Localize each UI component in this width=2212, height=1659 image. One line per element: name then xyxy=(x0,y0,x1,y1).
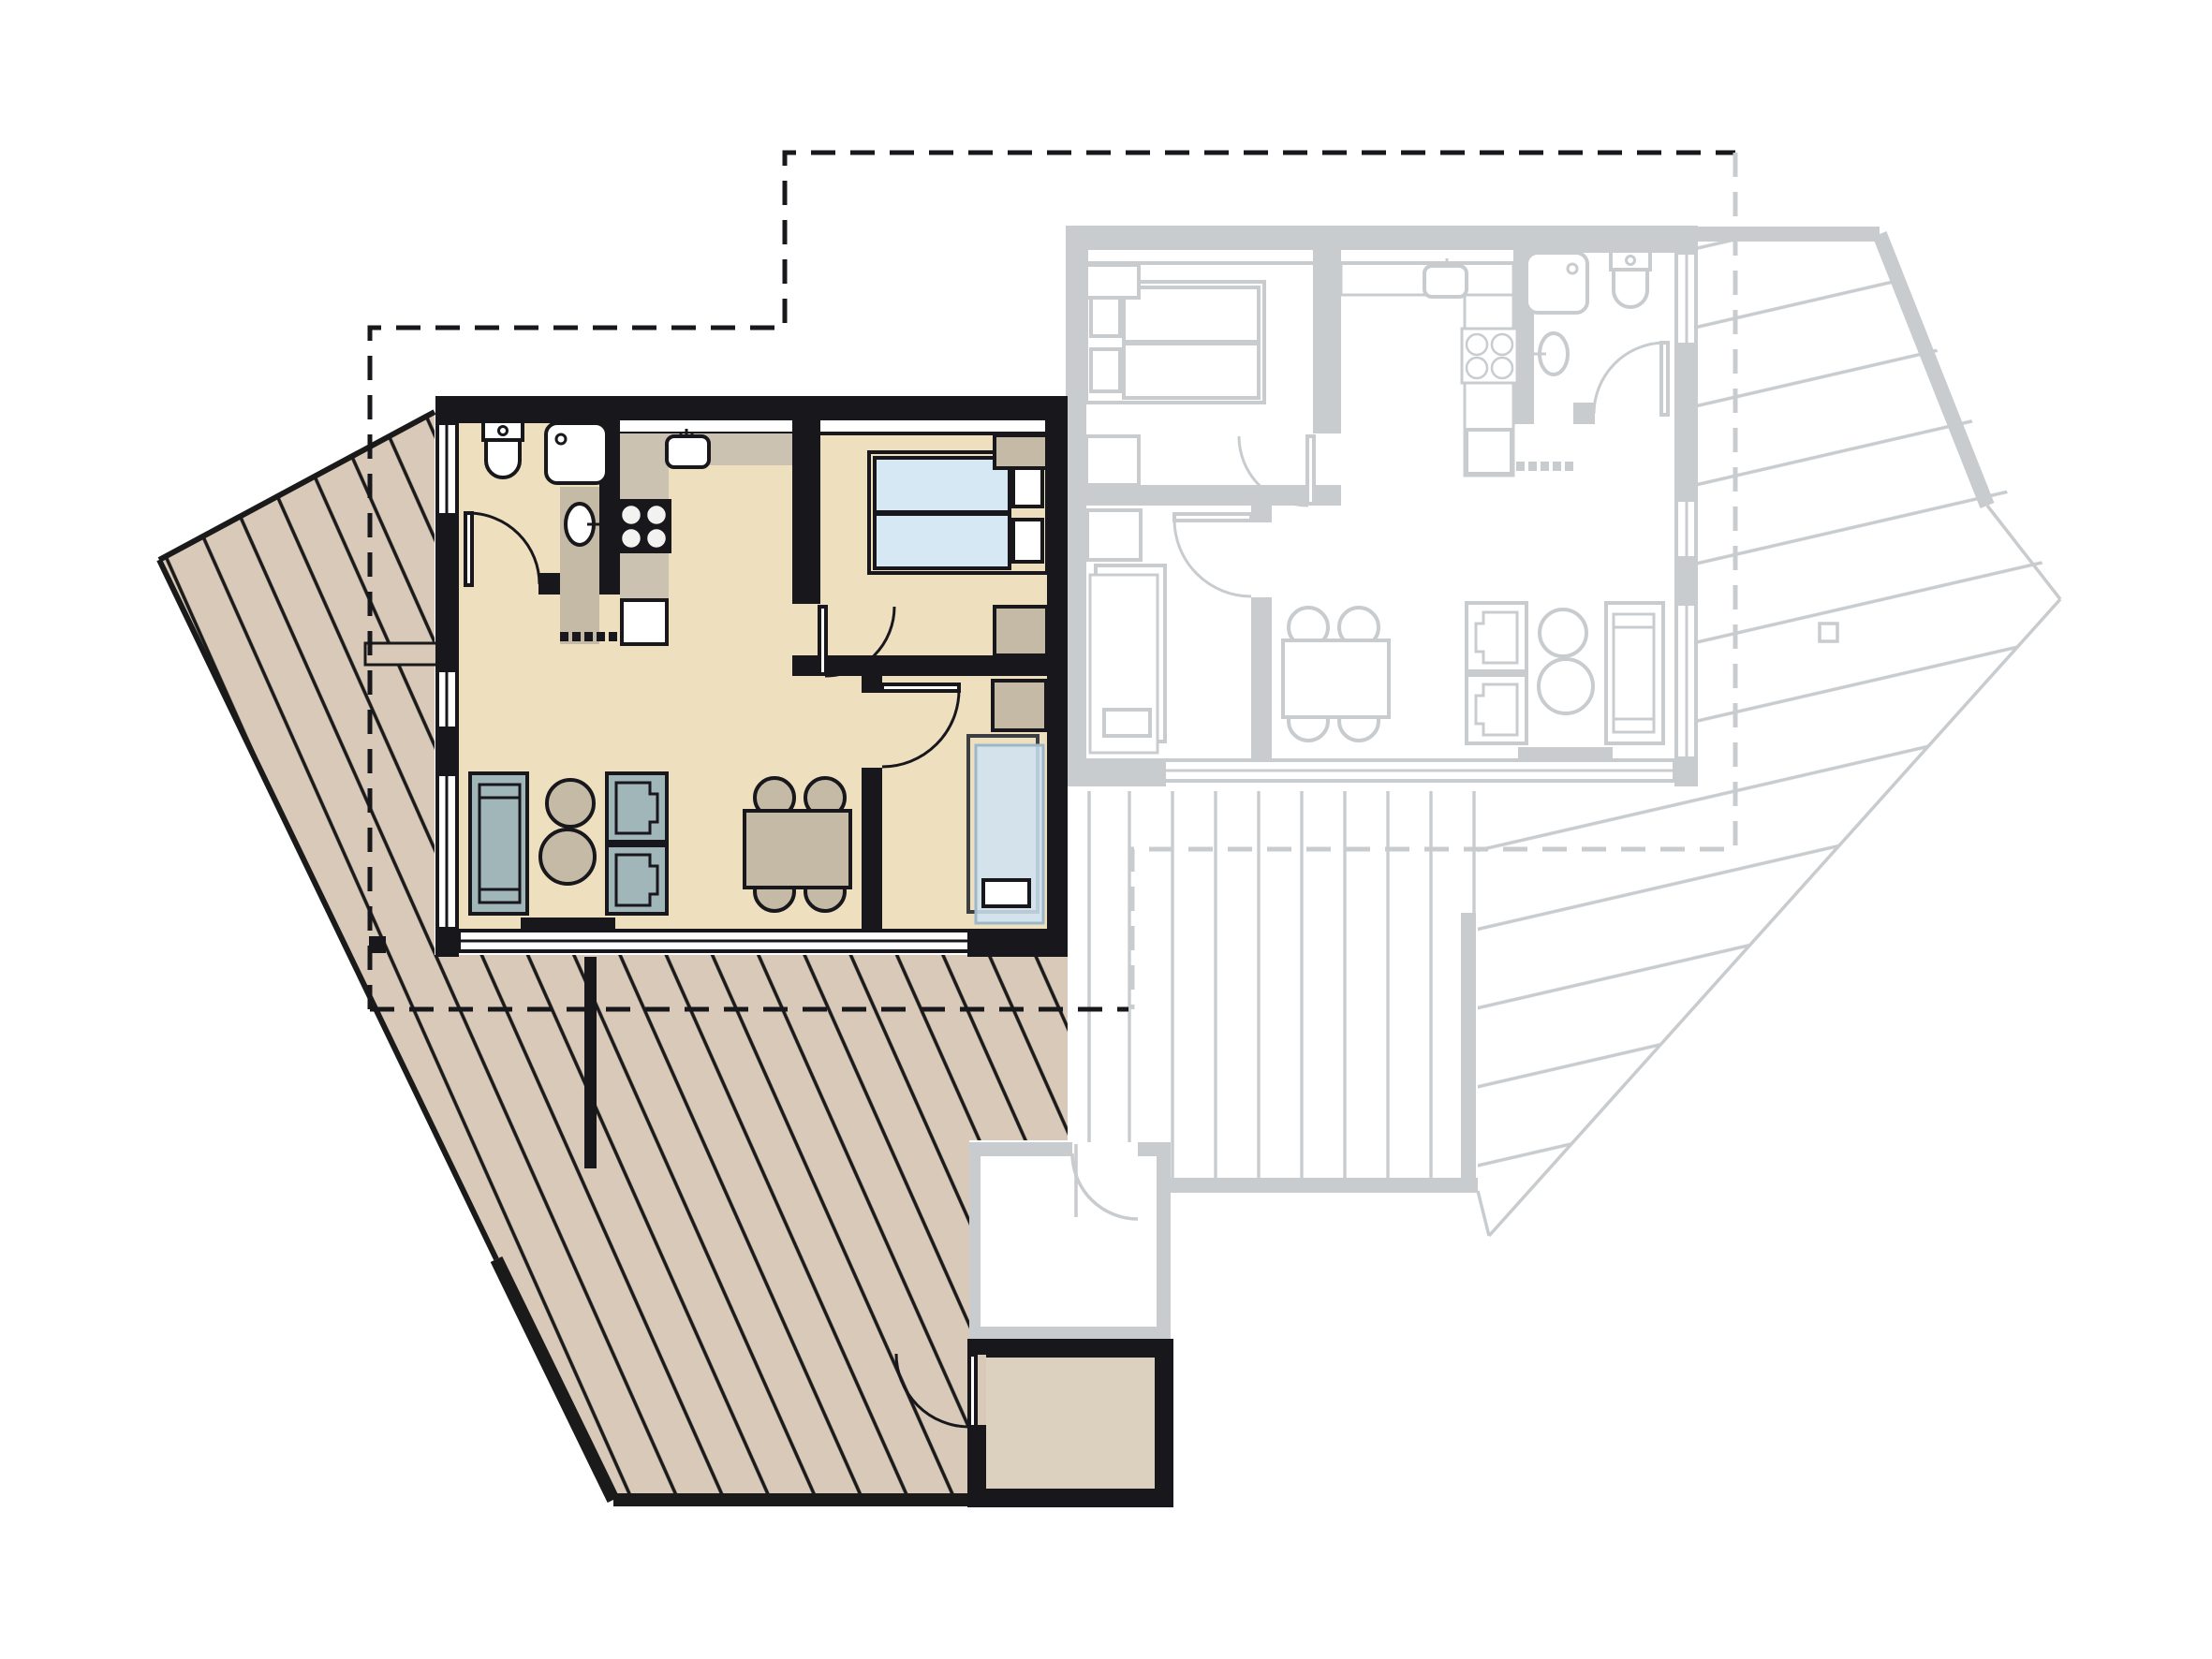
pillow xyxy=(1013,520,1042,562)
bedroom xyxy=(1066,226,1341,506)
dining-table xyxy=(1283,640,1389,717)
built-in-appliance xyxy=(622,600,667,644)
bedroom-bottom-wall xyxy=(792,655,1068,676)
coffee-table-round-large xyxy=(540,829,595,884)
tv-bench xyxy=(1518,747,1613,760)
toilet-icon xyxy=(1611,251,1650,270)
bedroom-left-wall xyxy=(792,396,820,604)
door-arc-icon xyxy=(1174,520,1251,596)
bed-icon xyxy=(1124,287,1259,342)
living-dining-room xyxy=(1283,603,1663,760)
door-leaf xyxy=(465,513,472,585)
armchair-icon xyxy=(607,773,667,842)
top-window-band xyxy=(609,418,1047,433)
pillow xyxy=(1091,349,1120,391)
right-wall xyxy=(1066,226,1086,786)
deck-step xyxy=(365,643,438,665)
bedroom-bottom-wall xyxy=(1066,485,1341,506)
nook-left-wall xyxy=(862,768,882,932)
door-arc-icon xyxy=(1594,343,1665,414)
bed-icon xyxy=(1124,344,1259,398)
bed-icon xyxy=(875,514,1010,568)
toilet-icon xyxy=(483,421,523,440)
bathroom xyxy=(1513,226,1668,474)
shower-icon xyxy=(546,423,607,483)
nook-left-wall xyxy=(1251,597,1272,761)
bedroom-left-wall xyxy=(1313,226,1341,433)
door-leaf xyxy=(1174,514,1251,521)
adjacent-storage-room xyxy=(966,1142,1171,1341)
nightstand xyxy=(1086,265,1139,298)
pillow xyxy=(1091,294,1120,336)
door-leaf xyxy=(969,1355,976,1427)
door-leaf xyxy=(819,607,826,674)
coffee-table-round-large xyxy=(1539,659,1593,713)
door-leaf xyxy=(1307,436,1314,504)
shower-icon xyxy=(1526,253,1587,313)
built-in-appliance xyxy=(1467,430,1512,474)
kitchen xyxy=(1341,258,1517,476)
door-leaf xyxy=(1661,343,1668,415)
nightstand xyxy=(1086,436,1139,485)
sleeping-nook xyxy=(1087,506,1272,761)
coffee-table-round-small xyxy=(1540,609,1586,656)
bed-icon xyxy=(875,458,1010,512)
nightstand xyxy=(1087,510,1141,560)
privacy-screen xyxy=(584,957,597,1168)
right-wall xyxy=(1047,396,1068,957)
floor-plan-page xyxy=(0,0,2212,1659)
bottom-wall-nook xyxy=(967,929,1068,957)
sink-icon xyxy=(1424,266,1467,297)
dining-table xyxy=(745,811,850,888)
bottom-wall-nook xyxy=(1066,758,1166,786)
armchair-icon xyxy=(1467,675,1526,743)
armchair-icon xyxy=(1467,603,1526,671)
pillow xyxy=(983,880,1029,906)
floor-plan-canvas xyxy=(0,0,2212,1659)
adjacent-unit-mirrored xyxy=(1066,226,1698,786)
nightstand xyxy=(993,681,1046,730)
pillow xyxy=(1104,710,1150,736)
tv-bench xyxy=(521,918,615,931)
armchair-icon xyxy=(607,845,667,914)
top-window-band xyxy=(1086,248,1525,263)
toilet-bowl xyxy=(486,440,520,477)
toilet-bowl xyxy=(1614,270,1647,307)
nightstand xyxy=(995,607,1047,655)
nightstand xyxy=(995,435,1047,468)
highlighted-unit xyxy=(435,396,1068,957)
pillow xyxy=(1013,464,1042,507)
sink-icon xyxy=(667,436,709,467)
coffee-table-round-small xyxy=(547,780,594,827)
door-leaf xyxy=(882,684,959,691)
adjacent-unit-layer xyxy=(1066,226,1698,786)
